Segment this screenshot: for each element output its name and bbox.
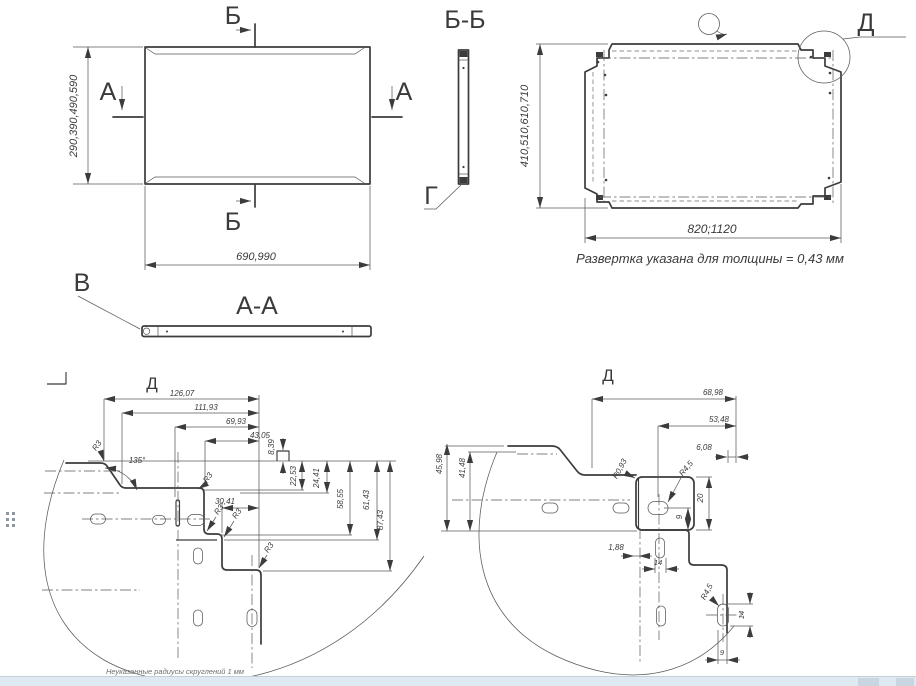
footer-note: Неуказанные радиусы скруглений 1 мм bbox=[106, 667, 244, 676]
obround-hole bbox=[194, 610, 203, 626]
section-b-label-top: Б bbox=[225, 2, 241, 30]
dim-9-upper: 9 bbox=[675, 514, 684, 519]
drag-handle-icon[interactable] bbox=[6, 512, 17, 529]
edge-v-leader bbox=[78, 296, 140, 329]
obround-hole bbox=[656, 538, 665, 558]
obround-hole bbox=[194, 548, 203, 564]
edge-v-label: В bbox=[74, 269, 91, 297]
scrollbar-button-left[interactable] bbox=[858, 678, 879, 686]
view-detail-left: Д bbox=[42, 372, 424, 682]
radius-label-r45-2: R4,5 bbox=[699, 582, 715, 602]
dim-24-41: 24,41 bbox=[312, 468, 321, 489]
obround-hole bbox=[613, 503, 629, 513]
panel-outline bbox=[145, 47, 370, 184]
dim-panel-height: 290,390,490,590 bbox=[68, 74, 80, 158]
corner-mark-icon bbox=[47, 372, 66, 384]
dim-87-43: 87,43 bbox=[376, 509, 385, 530]
detail-right-tab bbox=[636, 477, 694, 530]
radius-label-r3-1: R3 bbox=[90, 438, 104, 452]
dim-14-mid: 14 bbox=[654, 558, 662, 567]
detail-right-boundary-arc bbox=[479, 452, 734, 675]
dim-111-93: 111,93 bbox=[194, 403, 218, 412]
flat-pattern-note: Развертка указана для толщины = 0,43 мм bbox=[576, 251, 844, 266]
radius-label-r093: R0,93 bbox=[611, 457, 629, 481]
section-aa-strip bbox=[142, 326, 371, 337]
section-a-label-left: А bbox=[100, 78, 117, 106]
rotated-view-icon bbox=[699, 14, 728, 35]
panel-top-flange-line bbox=[146, 48, 364, 54]
radius-label-r45-1: R4,5 bbox=[677, 459, 695, 478]
dim-9-bottom: 9 bbox=[720, 648, 725, 657]
dim-22-53: 22,53 bbox=[289, 465, 298, 487]
view-detail-right: Д bbox=[435, 366, 753, 675]
corner-tab-tr bbox=[824, 52, 831, 57]
corner-tab-tl bbox=[596, 52, 603, 57]
view-flat-pattern: Д 410,510,610,710 820;1120 Развертка ука… bbox=[519, 9, 906, 266]
dim-126-07: 126,07 bbox=[170, 389, 195, 398]
drawing-canvas: Б Б А А 290,390,490,590 690,990 В А-А bbox=[0, 0, 916, 686]
dim-flat-height: 410,510,610,710 bbox=[519, 84, 531, 167]
view-section-aa: А-А bbox=[142, 292, 371, 337]
detail-right-outline-lower bbox=[641, 530, 727, 633]
section-bb-title: Б-Б bbox=[444, 6, 485, 34]
flat-pattern-outline bbox=[585, 44, 841, 208]
bottom-bar bbox=[0, 676, 916, 686]
section-b-label-bottom: Б bbox=[225, 208, 241, 236]
dim-1-88: 1,88 bbox=[608, 543, 624, 552]
view-panel-top: Б Б А А 290,390,490,590 690,990 В bbox=[68, 2, 413, 329]
detail-d-label: Д bbox=[858, 9, 875, 37]
cad-drawing-page: Б Б А А 290,390,490,590 690,990 В А-А bbox=[0, 0, 916, 686]
detail-right-title: Д bbox=[602, 366, 614, 385]
radius-label-r3-2: R3 bbox=[201, 470, 215, 484]
obround-hole bbox=[153, 516, 166, 525]
obround-hole bbox=[657, 606, 666, 626]
detail-d-leader bbox=[843, 37, 906, 39]
dim-panel-width: 690,990 bbox=[236, 251, 277, 263]
section-aa-title: А-А bbox=[236, 292, 278, 320]
dim-6-08: 6,08 bbox=[696, 443, 712, 452]
dim-53-48: 53,48 bbox=[709, 415, 730, 424]
radius-label-r3-4: R3 bbox=[230, 506, 244, 520]
dim-45-98: 45,98 bbox=[435, 453, 444, 474]
panel-bottom-flange-line bbox=[146, 177, 364, 183]
section-bb-strip bbox=[459, 50, 469, 184]
dim-58-55: 58,55 bbox=[336, 488, 345, 509]
obround-hole bbox=[188, 515, 205, 526]
obround-hole bbox=[542, 503, 558, 513]
edge-g-label: Г bbox=[424, 182, 438, 210]
view-section-bb: Б-Б Г bbox=[424, 6, 486, 210]
dim-69-93: 69,93 bbox=[226, 417, 247, 426]
dim-43-05: 43,05 bbox=[250, 431, 271, 440]
corner-tab-outline bbox=[277, 451, 289, 461]
dim-61-43: 61,43 bbox=[362, 489, 371, 510]
dim-20: 20 bbox=[696, 493, 705, 503]
dim-8-39: 8,39 bbox=[267, 439, 276, 455]
dim-flat-width: 820;1120 bbox=[687, 222, 736, 236]
detail-left-title: Д bbox=[146, 374, 158, 393]
section-a-label-right: А bbox=[396, 78, 413, 106]
dim-41-48: 41,48 bbox=[458, 457, 467, 478]
dim-14-right: 14 bbox=[737, 611, 746, 619]
dim-68-98: 68,98 bbox=[703, 388, 724, 397]
dim-angle-135: 135° bbox=[129, 456, 146, 465]
scrollbar-button-right[interactable] bbox=[896, 678, 914, 686]
radius-label-r3-5: R3 bbox=[262, 540, 276, 554]
